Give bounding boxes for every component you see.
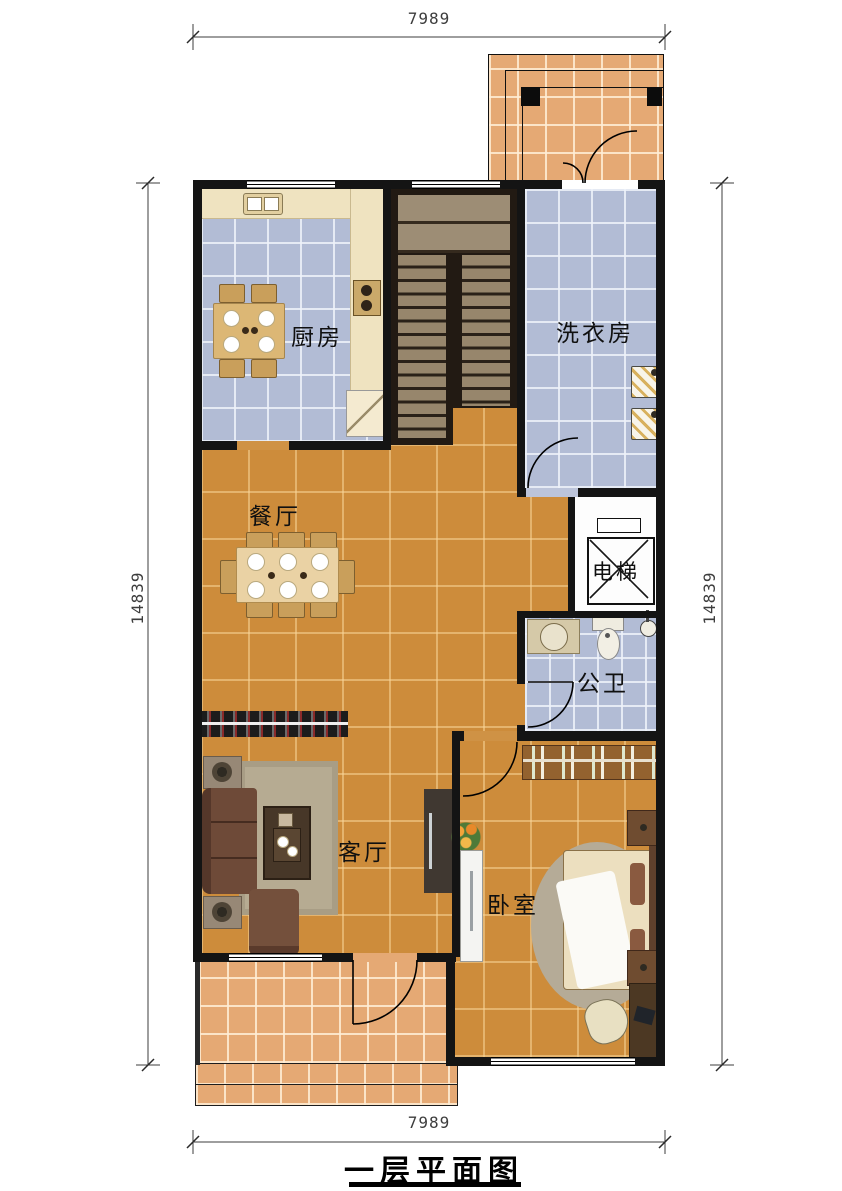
- elevator-door: [597, 518, 641, 533]
- laptop: [633, 1006, 655, 1025]
- wall: [193, 180, 202, 962]
- wall: [517, 618, 525, 684]
- chair: [251, 359, 277, 378]
- floor-plan: 厨房 洗衣房 餐厅 电梯 公卫 客厅 卧室 7989 7989 14839 14…: [0, 0, 842, 1191]
- kitchen-door-opening: [237, 441, 289, 450]
- bowl: [268, 572, 275, 579]
- wall: [193, 441, 391, 450]
- blanket: [555, 870, 637, 990]
- dimension-label-left: 14839: [128, 550, 148, 646]
- bowl: [251, 327, 258, 334]
- kitchen-table: [213, 303, 285, 359]
- lamp: [640, 964, 647, 971]
- window: [412, 180, 500, 189]
- bathroom-sink: [527, 619, 580, 654]
- potted-plant: [212, 762, 232, 782]
- picture-frame: [278, 813, 293, 827]
- window: [229, 953, 322, 962]
- potted-plant: [212, 902, 232, 922]
- wall: [517, 188, 525, 497]
- burner: [361, 300, 372, 311]
- plate: [223, 310, 240, 327]
- wardrobe: [522, 745, 662, 780]
- room-label-bathroom: 公卫: [577, 664, 629, 698]
- bowl: [300, 572, 307, 579]
- patio-step: [195, 1084, 458, 1106]
- dining-table: [236, 547, 339, 603]
- sink-basin: [264, 197, 279, 211]
- corner-cabinet: [346, 390, 385, 437]
- room-label-dining: 餐厅: [249, 497, 301, 531]
- coat-rack: [202, 711, 348, 737]
- burner: [361, 285, 372, 296]
- plate: [247, 581, 265, 599]
- plate: [279, 581, 297, 599]
- kitchen-sink: [243, 193, 283, 215]
- porch-door-opening: [562, 180, 638, 189]
- sofa: [202, 788, 257, 894]
- porch-step-line: [522, 87, 663, 182]
- cup: [277, 836, 289, 848]
- room-label-kitchen: 厨房: [291, 318, 343, 352]
- wardrobe-rail: [523, 759, 658, 762]
- dimension-label-top: 7989: [381, 9, 477, 29]
- patio-floor: [199, 962, 446, 1063]
- rack-rail: [202, 722, 348, 725]
- wall: [383, 188, 391, 446]
- chair: [251, 284, 277, 303]
- bedroom-door-opening: [464, 731, 517, 741]
- cup: [287, 846, 298, 857]
- room-label-living: 客厅: [338, 833, 390, 867]
- coffee-table: [263, 806, 311, 880]
- lamp: [640, 824, 647, 831]
- room-label-elevator: 电梯: [592, 556, 640, 586]
- stair-flight-left: [398, 255, 446, 438]
- laundry-door-opening: [526, 488, 578, 497]
- plate: [279, 553, 297, 571]
- room-label-laundry: 洗衣房: [556, 314, 634, 348]
- wall: [656, 180, 665, 1066]
- wall: [195, 962, 200, 1065]
- plate: [258, 336, 275, 353]
- wall: [446, 953, 455, 1066]
- title-underline: [349, 1182, 521, 1187]
- chair: [219, 284, 245, 303]
- wall: [452, 741, 460, 957]
- stair-flight-right: [462, 255, 510, 406]
- tv-screen: [429, 813, 432, 869]
- shower-head: [640, 620, 657, 637]
- wall: [517, 611, 665, 618]
- porch-column: [647, 87, 662, 106]
- patio-step: [195, 1063, 458, 1086]
- toilet-bowl: [597, 628, 620, 660]
- window: [491, 1057, 635, 1066]
- stair-landing: [398, 195, 510, 253]
- wall: [568, 497, 575, 614]
- dimension-tick: [187, 31, 671, 43]
- plate: [223, 336, 240, 353]
- plate: [311, 553, 329, 571]
- pillow: [630, 863, 645, 905]
- flush-button: [605, 633, 610, 638]
- plate: [258, 310, 275, 327]
- plate: [311, 581, 329, 599]
- stove: [353, 280, 381, 316]
- bowl: [242, 327, 249, 334]
- porch-column: [521, 87, 540, 106]
- side-table: [203, 896, 242, 929]
- window: [247, 180, 335, 189]
- tv-cabinet: [460, 850, 483, 962]
- room-label-bedroom: 卧室: [487, 886, 539, 920]
- plate: [247, 553, 265, 571]
- sink-basin: [247, 197, 262, 211]
- sink-basin: [540, 623, 568, 651]
- dimension-label-bottom: 7989: [381, 1113, 477, 1133]
- chair: [219, 359, 245, 378]
- chair: [337, 560, 355, 594]
- armchair: [249, 889, 299, 955]
- side-table: [203, 756, 242, 789]
- patio-door-opening: [353, 953, 417, 962]
- tv-screen: [470, 871, 473, 931]
- dimension-label-right: 14839: [700, 550, 720, 646]
